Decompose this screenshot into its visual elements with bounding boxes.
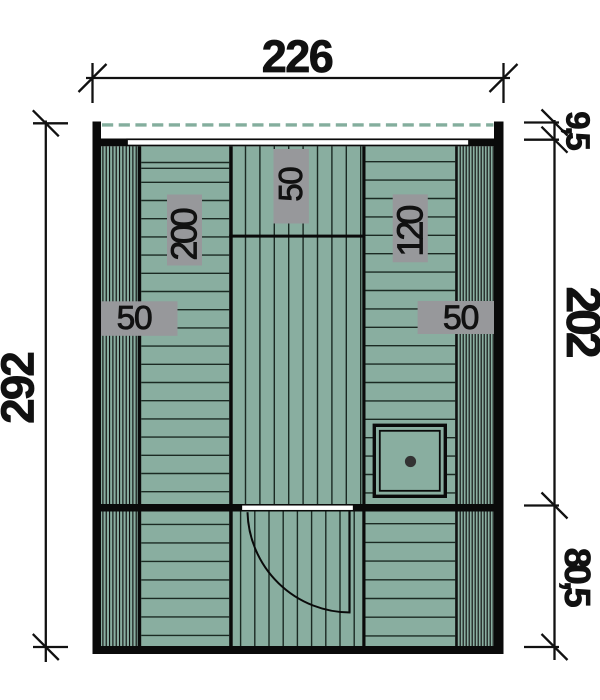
- svg-text:200: 200: [164, 208, 205, 260]
- svg-text:9,5: 9,5: [559, 111, 596, 150]
- svg-text:80,5: 80,5: [557, 548, 598, 608]
- svg-text:202: 202: [556, 286, 600, 356]
- svg-text:292: 292: [0, 353, 44, 424]
- svg-text:120: 120: [389, 206, 430, 257]
- svg-text:50: 50: [117, 300, 152, 337]
- svg-text:226: 226: [262, 31, 333, 82]
- svg-text:50: 50: [443, 299, 479, 337]
- svg-text:50: 50: [272, 167, 309, 202]
